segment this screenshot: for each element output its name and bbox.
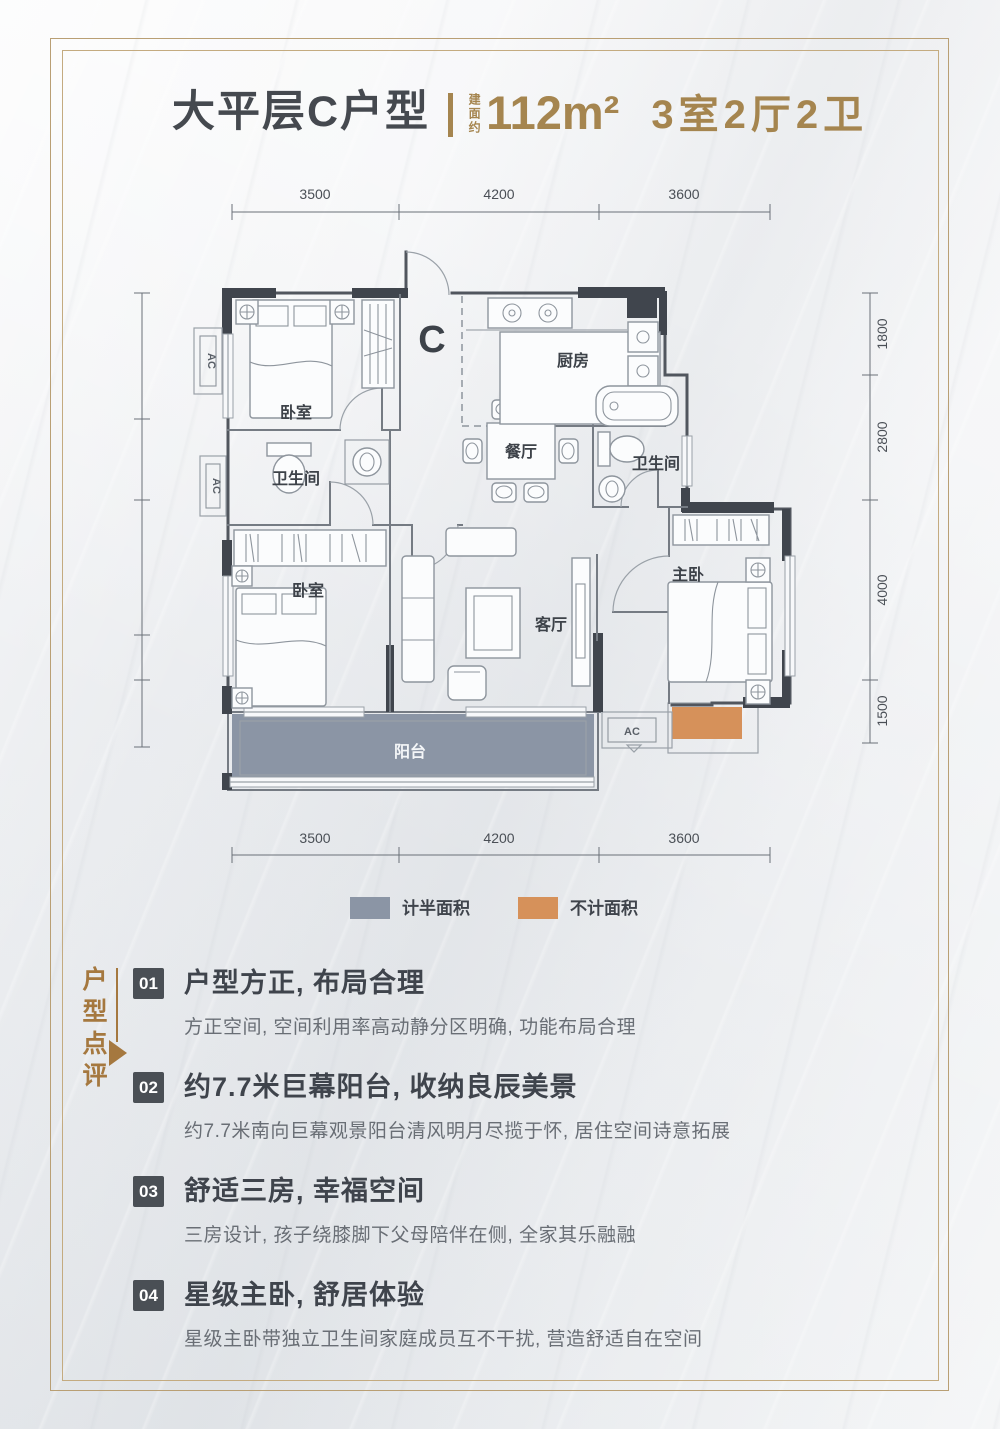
dim-right-2: 2800: [874, 421, 890, 452]
dim-right-1: 1800: [874, 318, 890, 349]
review-item-title: 户型方正, 布局合理: [184, 969, 425, 999]
basin-icon: [345, 440, 389, 484]
room-label-bath-left: 卫生间: [272, 469, 320, 488]
dim-bottom-2: 4200: [483, 830, 514, 846]
review-item-desc: 约7.7米南向巨幕观景阳台清风明月尽揽于怀, 居住空间诗意拓展: [184, 1120, 893, 1145]
review-item-3: 03 舒适三房, 幸福空间 三房设计, 孩子绕膝脚下父母陪伴在侧, 全家其乐融融: [133, 1176, 893, 1249]
unit-letter: C: [418, 319, 445, 361]
review-section-label: 户型点评: [80, 966, 105, 1094]
room-label-bath-right: 卫生间: [632, 454, 680, 473]
review-item-desc: 三房设计, 孩子绕膝脚下父母陪伴在侧, 全家其乐融融: [184, 1224, 893, 1249]
ac-platform-label: AC: [624, 726, 640, 738]
room-label-bedroom-bottom: 卧室: [292, 581, 324, 600]
excluded-area: [668, 703, 758, 753]
ac-unit-icon: AC: [200, 456, 226, 516]
review-item-number: 01: [133, 968, 164, 999]
title-divider: [448, 93, 453, 137]
legend-label-half-area: 计半面积: [402, 898, 470, 918]
review-item-number: 03: [133, 1176, 164, 1207]
stove-icon: [466, 298, 627, 330]
review-item-title: 舒适三房, 幸福空间: [184, 1177, 425, 1207]
area-value: 112m²: [486, 88, 619, 137]
unit-type-title: 大平层C户型: [172, 88, 430, 137]
ac-unit-label-2: AC: [210, 478, 222, 494]
title-bar: 大平层C户型 建面约 112m² 3室2厅2卫: [172, 88, 868, 139]
review-item-number: 04: [133, 1280, 164, 1311]
review-item-title: 星级主卧, 舒居体验: [184, 1281, 425, 1311]
coffee-table-icon: [466, 588, 520, 658]
floorplan-svg: 3500 4200 3600 3500 4200 3600 2800 1800 …: [130, 180, 890, 928]
legend-swatch-excluded-area: [518, 897, 558, 919]
room-label-kitchen: 厨房: [557, 351, 589, 370]
review-item-1: 01 户型方正, 布局合理 方正空间, 空间利用率高动静分区明确, 功能布局合理: [133, 968, 893, 1041]
dim-right-3: 4000: [874, 574, 890, 605]
dim-top-2: 4200: [483, 186, 514, 202]
room-spec: 3室2厅2卫: [651, 91, 868, 139]
wardrobe-icon: [362, 300, 394, 388]
wardrobe-icon: [234, 530, 386, 566]
room-label-living: 客厅: [535, 615, 567, 634]
ac-platform: AC: [602, 712, 672, 752]
area-prefix-label: 建面约: [466, 93, 483, 137]
review-vertical-line: [116, 968, 118, 1042]
room-label-dining: 餐厅: [504, 442, 537, 461]
dim-top-1: 3500: [299, 186, 330, 202]
review-arrow-icon: [109, 1040, 127, 1066]
bed-icon: [236, 300, 354, 418]
dim-bottom-3: 3600: [668, 830, 699, 846]
tv-cabinet-icon: [572, 558, 590, 686]
review-item-2: 02 约7.7米巨幕阳台, 收纳良辰美景 约7.7米南向巨幕观景阳台清风明月尽揽…: [133, 1072, 893, 1145]
ac-unit-icon: AC: [194, 328, 222, 394]
review-item-desc: 方正空间, 空间利用率高动静分区明确, 功能布局合理: [184, 1016, 893, 1041]
room-label-bedroom-top: 卧室: [280, 403, 312, 422]
bathtub-icon: [596, 386, 678, 426]
room-label-master: 主卧: [672, 565, 704, 584]
legend: 计半面积 不计面积: [350, 897, 638, 919]
review-item-desc: 星级主卧带独立卫生间家庭成员互不干扰, 营造舒适自在空间: [184, 1328, 893, 1353]
room-label-balcony: 阳台: [394, 742, 426, 761]
wardrobe-icon: [673, 515, 769, 545]
balcony-area: 阳台: [232, 714, 594, 782]
dim-top-3: 3600: [668, 186, 699, 202]
review-item-number: 02: [133, 1072, 164, 1103]
review-item-4: 04 星级主卧, 舒居体验 星级主卧带独立卫生间家庭成员互不干扰, 营造舒适自在…: [133, 1280, 893, 1353]
dim-bottom-1: 3500: [299, 830, 330, 846]
ac-unit-label-1: AC: [205, 353, 217, 369]
basin-icon: [599, 476, 625, 502]
review-item-title: 约7.7米巨幕阳台, 收纳良辰美景: [184, 1073, 578, 1103]
legend-swatch-half-area: [350, 897, 390, 919]
legend-label-excluded-area: 不计面积: [570, 898, 638, 918]
dim-right-4: 1500: [874, 695, 890, 726]
